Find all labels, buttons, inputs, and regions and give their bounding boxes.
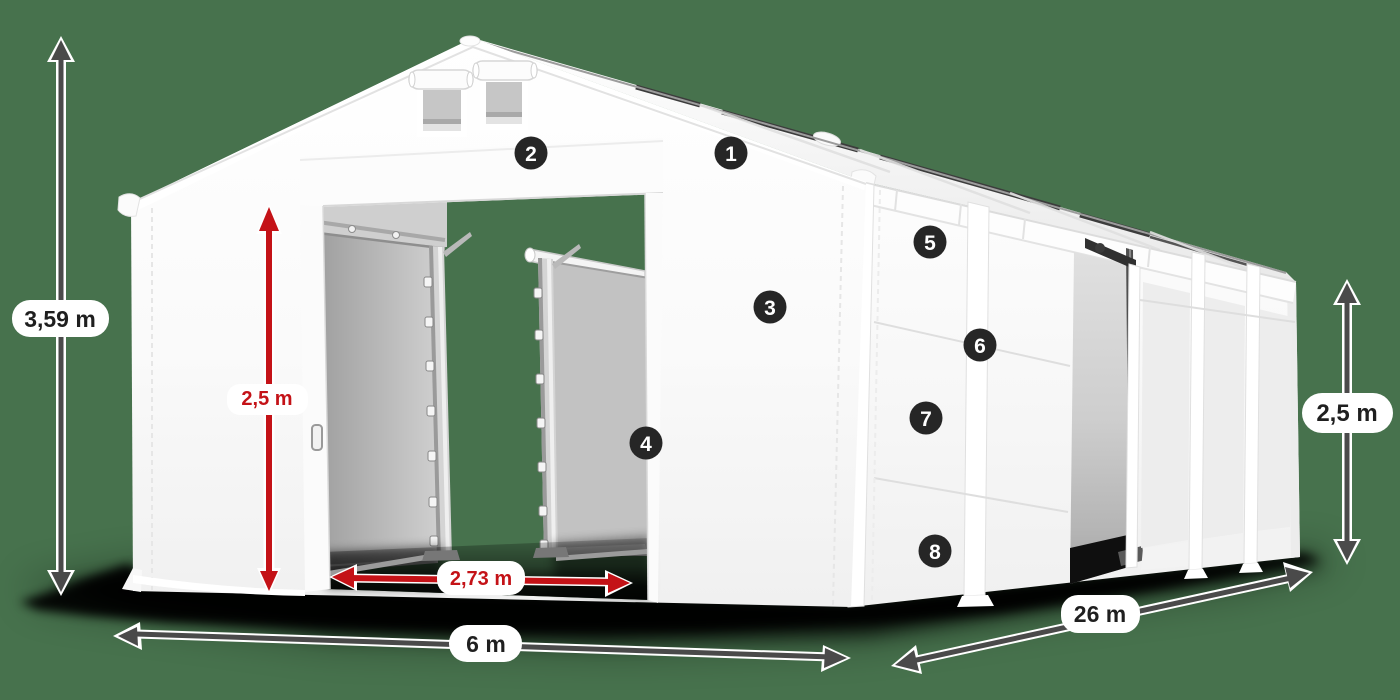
svg-text:1: 1 [725, 143, 737, 166]
svg-text:4: 4 [640, 433, 652, 456]
svg-text:8: 8 [929, 541, 941, 564]
svg-text:2,5 m: 2,5 m [241, 388, 292, 410]
svg-text:3,59 m: 3,59 m [24, 306, 96, 332]
svg-text:2,73 m: 2,73 m [450, 568, 512, 590]
svg-text:6: 6 [974, 335, 986, 358]
svg-text:2: 2 [525, 143, 537, 166]
svg-text:6 m: 6 m [466, 631, 506, 657]
svg-text:7: 7 [920, 408, 932, 431]
svg-text:2,5 m: 2,5 m [1316, 400, 1377, 427]
svg-text:26 m: 26 m [1074, 601, 1126, 627]
svg-text:3: 3 [764, 297, 776, 320]
svg-text:5: 5 [924, 232, 936, 255]
